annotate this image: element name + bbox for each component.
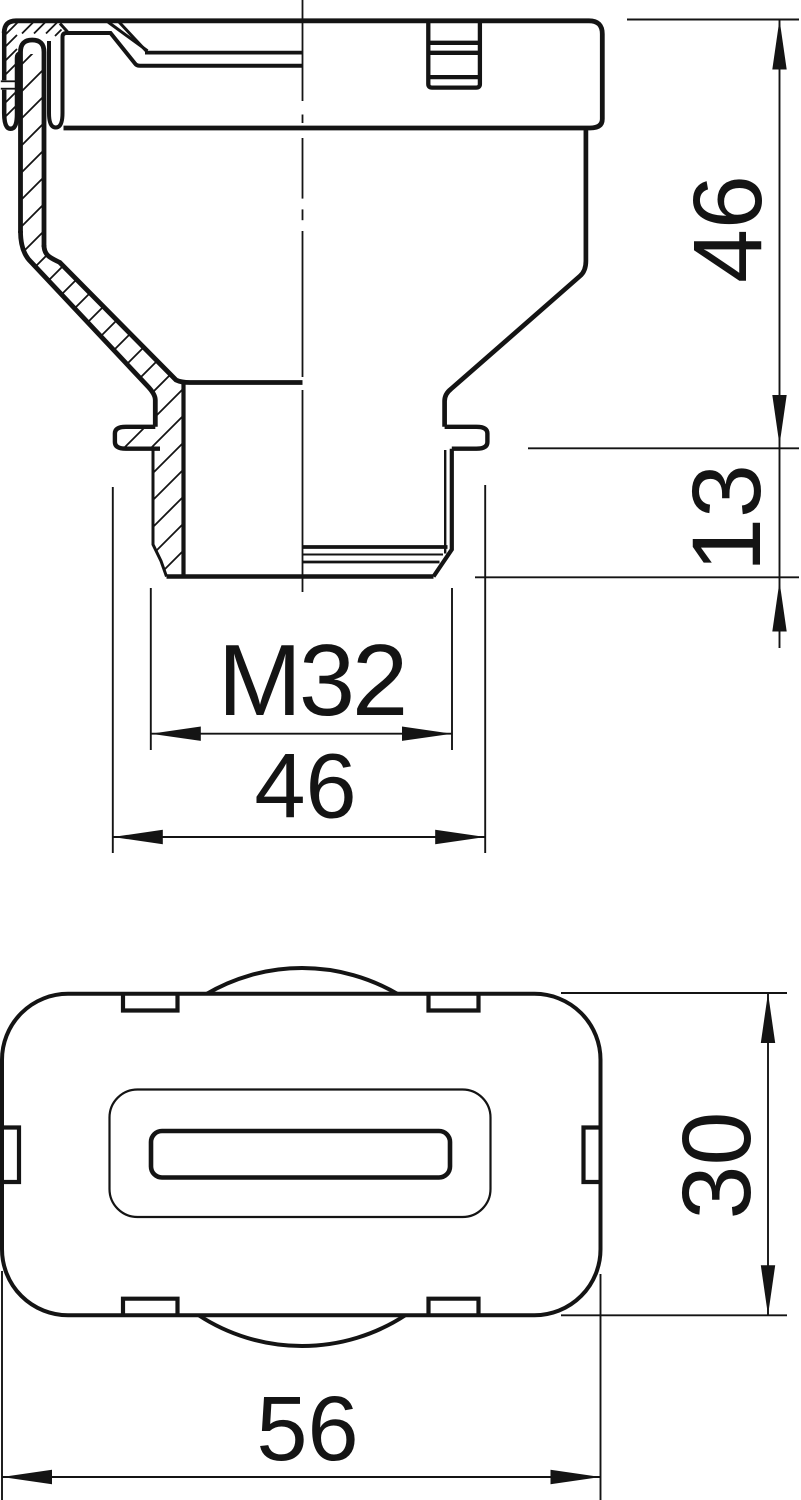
svg-text:46: 46 bbox=[673, 175, 782, 283]
svg-text:13: 13 bbox=[672, 464, 781, 572]
svg-text:M32: M32 bbox=[218, 625, 405, 737]
svg-text:46: 46 bbox=[254, 736, 356, 838]
svg-text:30: 30 bbox=[662, 1112, 771, 1220]
svg-text:56: 56 bbox=[256, 1378, 358, 1480]
